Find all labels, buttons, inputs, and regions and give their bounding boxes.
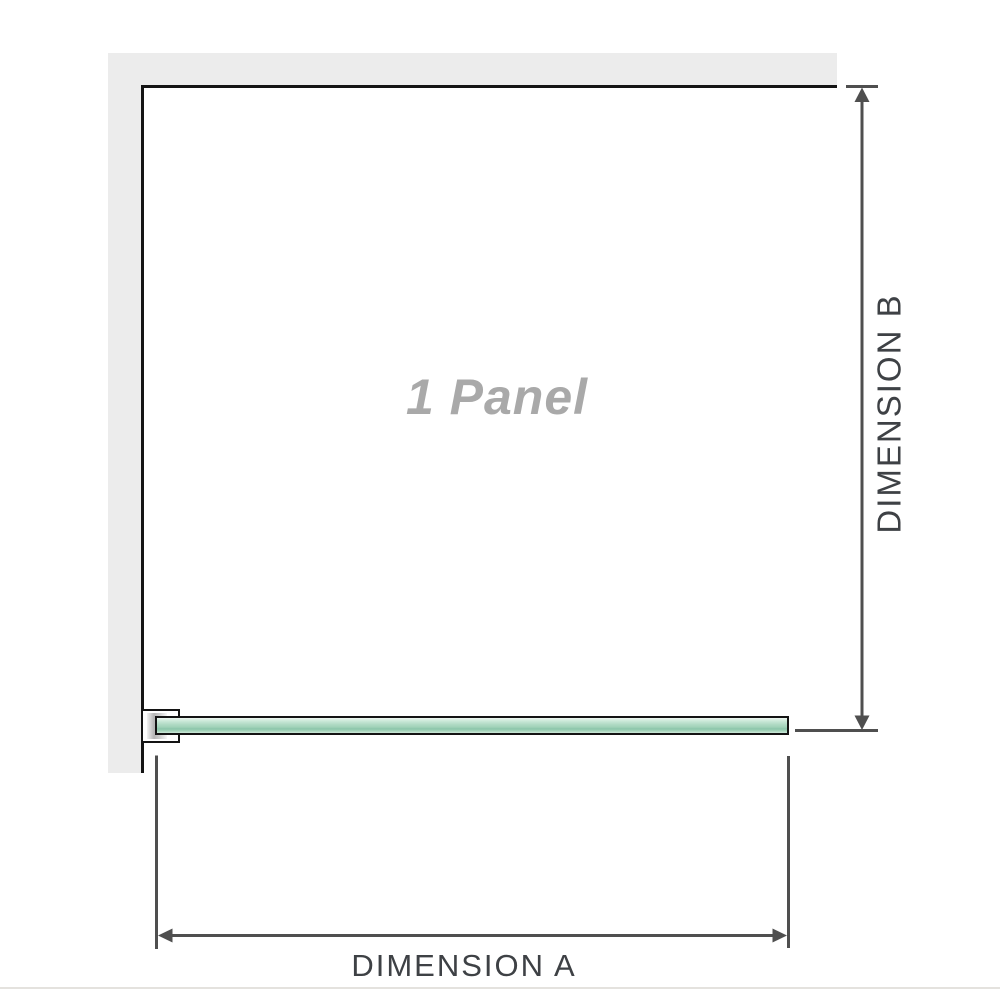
dimension-a-arrowhead-left [158, 929, 173, 943]
dimension-annotations [0, 0, 1000, 1000]
dimension-a-arrowhead-right [773, 929, 788, 943]
panel-dimension-diagram: 1 Panel DIMENSION B DIMENSION A [0, 0, 1000, 1000]
page-bottom-rule [0, 987, 1000, 989]
dimension-b-arrowhead-up [855, 88, 870, 103]
dimension-b-label: DIMENSION B [871, 264, 904, 564]
dimension-a-label: DIMENSION A [314, 948, 614, 984]
dimension-b-arrowhead-down [855, 716, 870, 731]
